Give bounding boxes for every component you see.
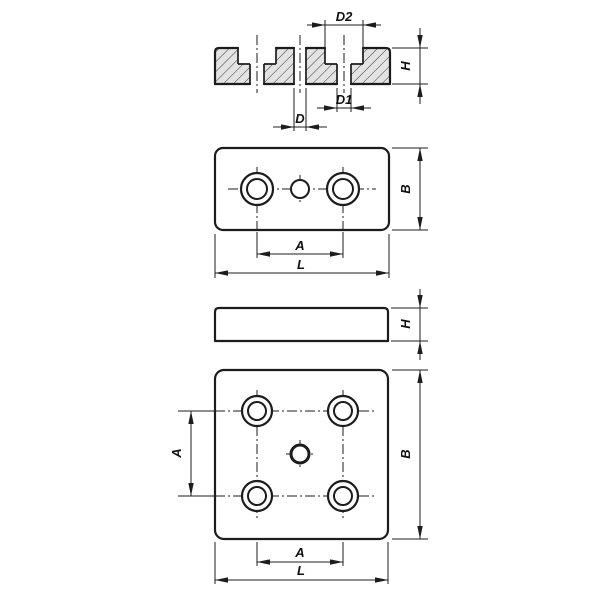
side-plate-outline bbox=[215, 308, 388, 341]
center-hole bbox=[291, 180, 309, 198]
dimension-a-vertical-square-plate: A bbox=[169, 411, 191, 496]
counterbore-hole-bottom-right-inner bbox=[334, 487, 352, 505]
dim-label-counterbore-diameter: D2 bbox=[336, 9, 353, 24]
dim-label-plate-length-rect: L bbox=[297, 257, 305, 272]
dim-label-hole-spacing-horizontal: A bbox=[294, 545, 304, 560]
dim-label-plate-height-side: H bbox=[398, 319, 413, 329]
technical-drawing-page: D2 H D1 D bbox=[0, 0, 600, 600]
dim-label-plate-width-rect: B bbox=[398, 184, 413, 193]
dim-label-plate-length-square: L bbox=[297, 563, 305, 578]
dimension-h-side: H bbox=[391, 289, 428, 360]
center-hole-square-plate bbox=[291, 445, 309, 463]
counterbore-hole-top-left-inner bbox=[248, 402, 266, 420]
square-plate-holes bbox=[242, 396, 358, 511]
dimension-d1: D1 bbox=[317, 88, 371, 112]
dim-label-plate-width-square: B bbox=[398, 449, 413, 458]
top-view-square-plate: A B A L bbox=[169, 370, 428, 584]
technical-drawing-canvas: D2 H D1 D bbox=[0, 0, 600, 600]
counterbore-hole-top-right-inner bbox=[334, 402, 352, 420]
dim-label-plate-height-section: H bbox=[398, 61, 413, 71]
cross-section-view: D2 H D1 D bbox=[215, 9, 428, 131]
dimension-d: D bbox=[273, 88, 327, 131]
side-view: H bbox=[215, 289, 428, 360]
dimension-b-square-plate: B bbox=[392, 370, 428, 539]
dim-label-pilot-hole-diameter: D1 bbox=[336, 92, 353, 107]
dim-label-hole-spacing-vertical: A bbox=[169, 448, 184, 458]
dimension-h-section: H bbox=[392, 28, 428, 104]
dim-label-center-hole-diameter: D bbox=[295, 111, 305, 126]
top-view-rectangular-plate: B A L bbox=[215, 148, 428, 278]
counterbore-hole-left-inner bbox=[247, 179, 267, 199]
counterbore-hole-bottom-left-inner bbox=[248, 487, 266, 505]
dim-label-hole-spacing-rect: A bbox=[294, 238, 304, 253]
dimension-b-rect-plate: B bbox=[392, 148, 428, 230]
counterbore-hole-right-inner bbox=[333, 179, 353, 199]
dimension-a-rect-plate: A bbox=[257, 238, 343, 254]
